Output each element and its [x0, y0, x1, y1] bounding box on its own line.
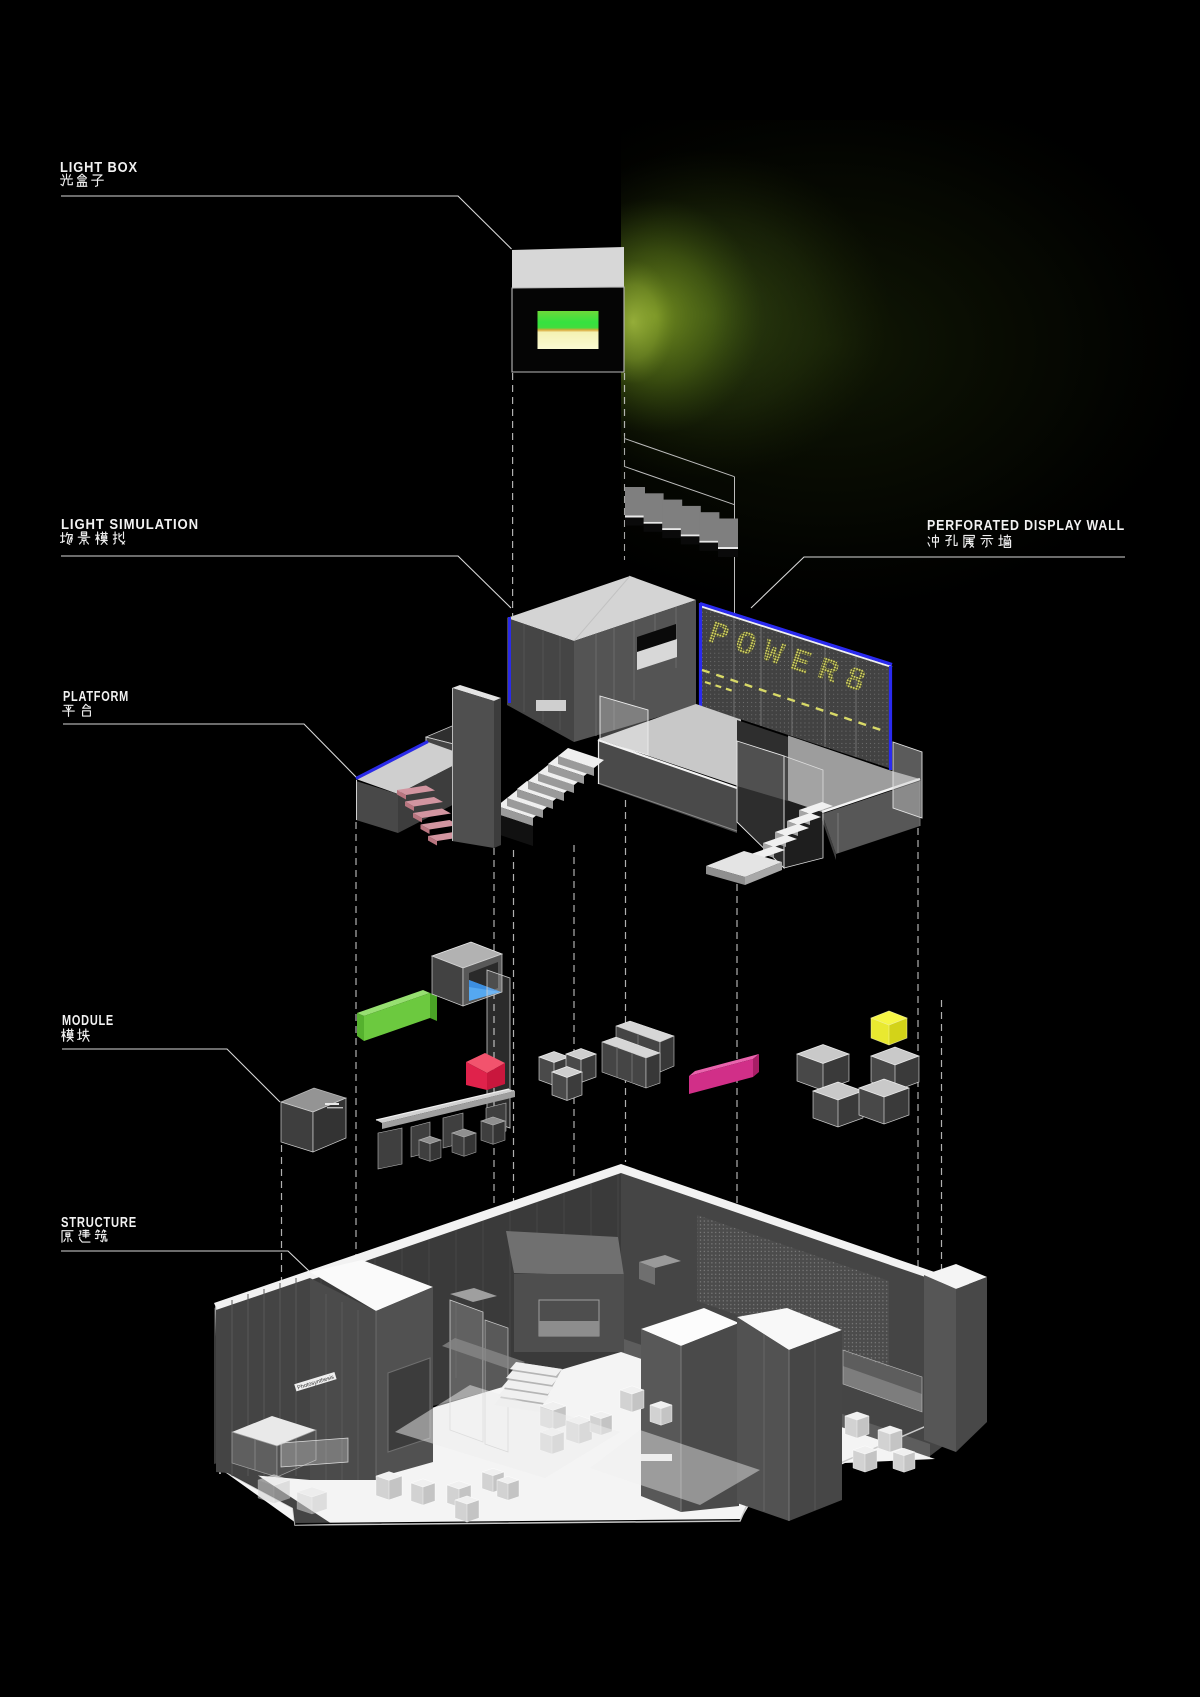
svg-text:STRUCTURE: STRUCTURE — [61, 1215, 137, 1231]
svg-text:PERFORATED DISPLAY WALL: PERFORATED DISPLAY WALL — [927, 518, 1125, 534]
svg-text:MODULE: MODULE — [62, 1013, 114, 1029]
svg-text:LIGHT BOX: LIGHT BOX — [60, 160, 138, 176]
svg-text:LIGHT SIMULATION: LIGHT SIMULATION — [61, 517, 199, 533]
svg-text:PLATFORM: PLATFORM — [63, 689, 129, 705]
